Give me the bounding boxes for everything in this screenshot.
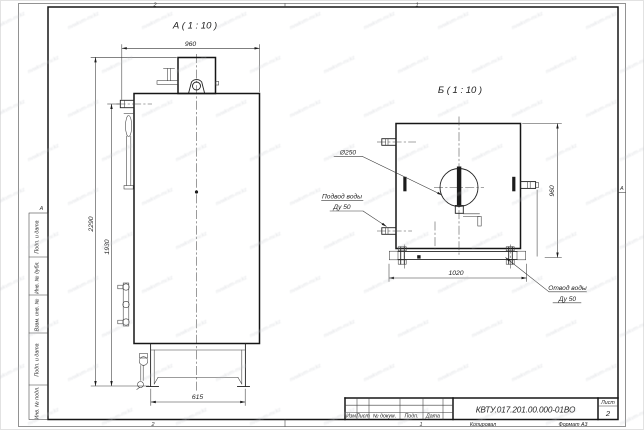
damper-axis: [457, 167, 461, 206]
zone-letter-left: А: [39, 206, 44, 212]
engineering-drawing-sheet: 2 1 2 1 А А Копировал Формат А3 Подп. и …: [0, 0, 644, 430]
svg-text:Ду 50: Ду 50: [558, 296, 577, 303]
zone-letter-right: А: [619, 186, 624, 192]
svg-text:Подвод воды: Подвод воды: [322, 192, 362, 200]
tb-col-data: Дата: [425, 414, 440, 420]
sheet-number: 2: [605, 409, 611, 418]
svg-text:960: 960: [185, 41, 197, 48]
tb-col-ndokum: № докум.: [373, 414, 396, 420]
hinge-tick-right: [512, 177, 515, 192]
svg-text:615: 615: [192, 394, 204, 401]
svg-text:Отвод воды: Отвод воды: [548, 284, 587, 292]
zone-number-bottom-left: 2: [150, 422, 154, 428]
tb-col-list: Лист: [355, 414, 370, 420]
svg-text:2290: 2290: [88, 216, 95, 232]
sheet-label: Лист: [600, 400, 615, 406]
strip-cell-inv-podl: Инв. № подл.: [35, 387, 41, 420]
strip-cell-podp-data-2: Подп. и дата: [35, 343, 41, 376]
drawing-canvas: 2 1 2 1 А А Копировал Формат А3 Подп. и …: [0, 0, 644, 430]
view-a-label: А ( 1 : 10 ): [172, 21, 217, 32]
footer-format: Формат А3: [559, 422, 588, 428]
zone-number-bottom-right: 1: [419, 422, 422, 428]
strip-cell-vzam-inv: Взам. инв. №: [35, 298, 41, 331]
zone-number-top-left: 2: [152, 2, 156, 8]
hinge-tick-left: [403, 177, 406, 192]
svg-text:960: 960: [549, 185, 556, 197]
strip-cell-podp-data-1: Подп. и дата: [35, 220, 41, 253]
svg-text:1020: 1020: [448, 270, 463, 277]
zone-number-top-right: 1: [415, 2, 418, 8]
svg-text:Ду 50: Ду 50: [332, 204, 351, 211]
strip-cell-inv-dubl: Инв. № дубл.: [35, 261, 41, 294]
view-b-label: Б ( 1 : 10 ): [438, 85, 482, 96]
